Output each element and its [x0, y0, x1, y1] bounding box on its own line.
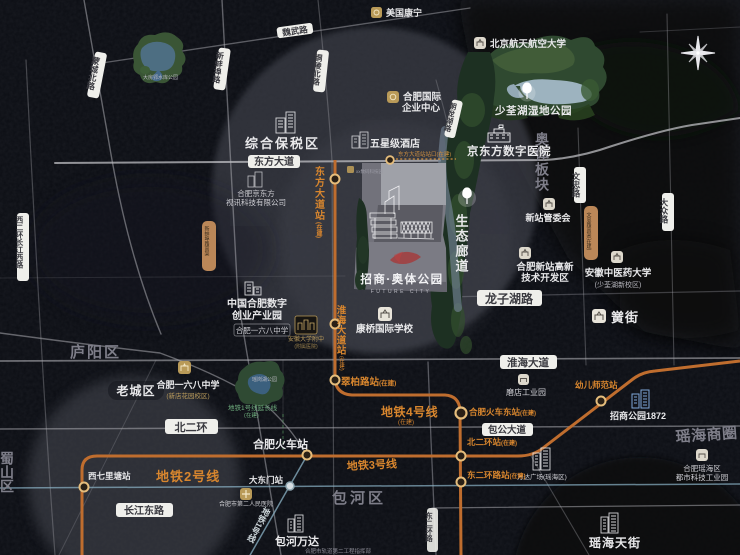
svg-text:技术开发区: 技术开发区 — [521, 272, 569, 284]
svg-text:美国康宁: 美国康宁 — [386, 7, 422, 18]
svg-text:龙子湖路: 龙子湖路 — [485, 291, 534, 306]
svg-text:地铁4号线: 地铁4号线 — [381, 404, 438, 419]
svg-text:蜀山区: 蜀山区 — [0, 451, 15, 493]
svg-text:康桥国际学校: 康桥国际学校 — [355, 323, 414, 335]
svg-text:地铁2号线: 地铁2号线 — [156, 469, 220, 484]
svg-text:东方大道: 东方大道 — [254, 155, 294, 168]
svg-text:(少荃湖新校区): (少荃湖新校区) — [595, 280, 642, 289]
svg-text:(在建): (在建) — [398, 418, 414, 426]
svg-text:安徽中医药大学: 安徽中医药大学 — [585, 267, 652, 279]
svg-text:文忠路: 文忠路 — [571, 171, 581, 198]
svg-text:合肥市轨道第二工程指挥部: 合肥市轨道第二工程指挥部 — [305, 547, 372, 555]
svg-text:京东方数字医院: 京东方数字医院 — [467, 144, 551, 158]
svg-text:新蚌埠路高架: 新蚌埠路高架 — [204, 225, 210, 257]
svg-text:合肥京东方: 合肥京东方 — [237, 188, 275, 198]
svg-text:五星级酒店: 五星级酒店 — [370, 137, 420, 150]
svg-text:文忠路高架(在建): 文忠路高架(在建) — [586, 211, 592, 250]
svg-text:都市科技工业园: 都市科技工业园 — [676, 472, 729, 482]
svg-text:东方大道站: 东方大道站 — [313, 165, 325, 221]
svg-text:包公大道: 包公大道 — [487, 424, 527, 436]
svg-text:(附属医院): (附属医院) — [294, 343, 318, 350]
svg-text:合肥新站高新: 合肥新站高新 — [516, 261, 574, 273]
svg-text:大房郢水库公园: 大房郢水库公园 — [143, 74, 178, 81]
svg-text:磨店工业园: 磨店工业园 — [506, 387, 546, 397]
svg-text:北二环: 北二环 — [175, 420, 208, 434]
svg-text:少荃湖湿地公园: 少荃湖湿地公园 — [494, 104, 572, 117]
svg-text:招商·奥体公园: 招商·奥体公园 — [360, 272, 443, 286]
svg-text:地铁1号线延长线: 地铁1号线延长线 — [228, 403, 278, 412]
svg-text:生态廊道: 生态廊道 — [454, 213, 469, 274]
svg-text:综合保税区: 综合保税区 — [245, 136, 320, 151]
svg-text:xx数码科技园: xx数码科技园 — [356, 168, 383, 175]
svg-text:北京航天航空大学: 北京航天航空大学 — [490, 38, 567, 50]
svg-text:合肥瑶海区: 合肥瑶海区 — [683, 463, 721, 473]
svg-text:淮海大道: 淮海大道 — [507, 356, 549, 369]
svg-text:长江东路: 长江东路 — [124, 504, 165, 517]
svg-text:合肥市第二人民医院: 合肥市第二人民医院 — [219, 500, 273, 508]
svg-text:大东门站: 大东门站 — [249, 475, 284, 485]
svg-text:包河万达: 包河万达 — [274, 534, 319, 548]
svg-text:大众路: 大众路 — [659, 197, 669, 224]
svg-text:合肥一六八中学: 合肥一六八中学 — [156, 379, 219, 390]
svg-text:FUTURE CITY: FUTURE CITY — [371, 289, 432, 295]
svg-text:西七里塘站: 西七里塘站 — [88, 471, 131, 481]
svg-text:(新店花园校区): (新店花园校区) — [166, 391, 209, 400]
svg-text:西二环长江西路: 西二环长江西路 — [15, 216, 24, 270]
svg-text:合肥一六八中学: 合肥一六八中学 — [236, 325, 289, 335]
svg-text:企业中心: 企业中心 — [401, 102, 441, 114]
svg-text:(在建): (在建) — [338, 356, 345, 371]
svg-text:瑶岗湖公园: 瑶岗湖公园 — [252, 376, 277, 383]
svg-text:淮海大道站: 淮海大道站 — [335, 304, 347, 355]
svg-text:奥体板块: 奥体板块 — [534, 131, 550, 192]
svg-text:东二环路: 东二环路 — [424, 511, 433, 544]
svg-text:东方大道站站口(在建): 东方大道站站口(在建) — [398, 150, 451, 158]
svg-text:(在建): (在建) — [244, 411, 259, 419]
svg-text:黉街: 黉街 — [611, 310, 639, 325]
svg-text:幼儿师范站: 幼儿师范站 — [575, 380, 618, 390]
svg-text:老城区: 老城区 — [116, 383, 155, 398]
svg-text:(在建): (在建) — [315, 222, 322, 238]
svg-text:中国合肥数字: 中国合肥数字 — [227, 297, 287, 310]
svg-text:包河区: 包河区 — [332, 489, 386, 507]
svg-text:合肥国际: 合肥国际 — [403, 91, 442, 103]
svg-text:创业产业园: 创业产业园 — [231, 309, 282, 322]
svg-text:安徽大学附中: 安徽大学附中 — [288, 335, 324, 343]
svg-text:合肥火车站: 合肥火车站 — [253, 437, 308, 451]
svg-text:庐阳区: 庐阳区 — [70, 343, 121, 361]
svg-text:视讯科技有限公司: 视讯科技有限公司 — [226, 197, 286, 207]
svg-text:招商公园1872: 招商公园1872 — [610, 410, 666, 421]
svg-text:新站管委会: 新站管委会 — [525, 212, 571, 223]
svg-text:瑶海天街: 瑶海天街 — [589, 535, 641, 550]
